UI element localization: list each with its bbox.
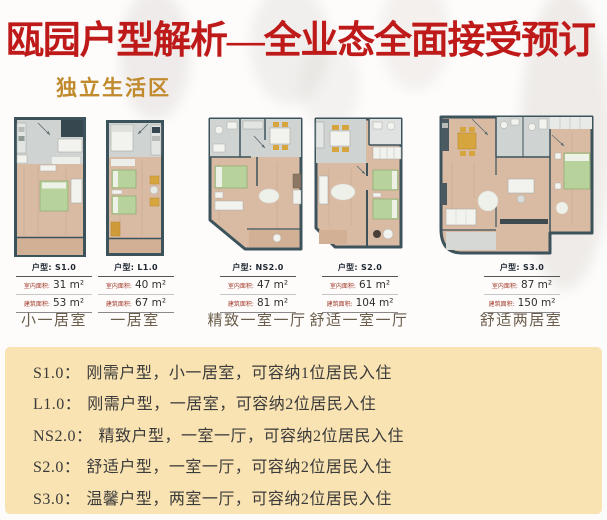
legend-desc: 刚需户型，一居室，可容纳2位居民入住	[87, 390, 376, 414]
legend-code: S2.0：	[33, 453, 80, 477]
legend-row-ns2: NS2.0：精致户型，一室一厅，可容纳2位居民入住	[33, 418, 602, 450]
plan-type-row: 户型: S2.0	[322, 262, 398, 277]
type-value: L1.0	[137, 263, 157, 272]
gross-area-label: 建筑面积:	[24, 299, 50, 308]
legend-code: S1.0：	[33, 359, 80, 383]
legend-row-s2: S2.0：舒适户型，一室一厅，可容纳2位居民入住	[33, 450, 602, 482]
legend-row-s3: S3.0：温馨户型，两室一厅，可容纳2位居民入住	[33, 481, 602, 513]
indoor-area-value: 61 m²	[359, 279, 390, 291]
floorplan-s3-image	[432, 113, 600, 258]
gross-area-value: 53 m²	[53, 297, 84, 309]
plan-info-ns2: 户型: NS2.0 室内面积:47 m² 建筑面积:81 m²	[220, 262, 296, 313]
gross-area-label: 建筑面积:	[228, 299, 254, 308]
indoor-area-row: 室内面积:87 m²	[484, 277, 560, 295]
legend-panel: S1.0：刚需户型，小一居室，可容纳1位居民入住 L1.0：刚需户型，一居室，可…	[5, 347, 602, 514]
indoor-area-label: 室内面积:	[106, 281, 132, 290]
plan-type-row: 户型: L1.0	[98, 262, 174, 277]
type-value: S1.0	[55, 263, 76, 272]
plan-type-row: 户型: S3.0	[484, 262, 560, 277]
floorplan-s3	[432, 113, 600, 258]
floorplan-l1	[106, 120, 164, 256]
indoor-area-row: 室内面积:40 m²	[98, 277, 174, 295]
type-label: 户型:	[338, 263, 358, 272]
gross-area-value: 67 m²	[135, 297, 166, 309]
plan-name: 一居室	[85, 309, 185, 330]
legend-code: NS2.0：	[33, 422, 92, 446]
indoor-area-label: 室内面积:	[492, 281, 518, 290]
plan-type-row: 户型: S1.0	[16, 262, 92, 277]
type-label: 户型:	[114, 263, 134, 272]
legend-code: S3.0：	[33, 485, 80, 509]
plan-name: 精致一室一厅	[207, 309, 307, 330]
floorplan-s2	[313, 116, 404, 250]
indoor-area-value: 87 m²	[521, 279, 552, 291]
type-label: 户型:	[500, 263, 520, 272]
plan-info-s3: 户型: S3.0 室内面积:87 m² 建筑面积:150 m²	[484, 262, 560, 313]
type-label: 户型:	[32, 263, 52, 272]
indoor-area-value: 31 m²	[53, 279, 84, 291]
page-title: 瓯园户型解析—全业态全面接受预订	[6, 9, 595, 64]
legend-desc: 舒适户型，一室一厅，可容纳2位居民入住	[86, 453, 392, 477]
indoor-area-row: 室内面积:61 m²	[322, 277, 398, 295]
gross-area-value: 81 m²	[257, 297, 288, 309]
gross-area-label: 建筑面积:	[489, 299, 515, 308]
indoor-area-label: 室内面积:	[24, 281, 50, 290]
legend-desc: 温馨户型，两室一厅，可容纳2位居民入住	[86, 485, 392, 509]
floorplan-l1-image	[106, 120, 164, 256]
indoor-area-value: 47 m²	[257, 279, 288, 291]
gross-area-value: 150 m²	[518, 297, 556, 309]
legend-row-l1: L1.0：刚需户型，一居室，可容纳2位居民入住	[33, 387, 602, 419]
legend-desc: 精致户型，一室一厅，可容纳2位居民入住	[98, 422, 404, 446]
type-value: NS2.0	[256, 263, 284, 272]
plan-type-row: 户型: NS2.0	[220, 262, 296, 277]
gross-area-label: 建筑面积:	[327, 299, 353, 308]
indoor-area-label: 室内面积:	[330, 281, 356, 290]
type-value: S3.0	[523, 263, 544, 272]
type-value: S2.0	[361, 263, 382, 272]
floorplan-ns2	[207, 116, 304, 252]
floorplan-s2-image	[313, 116, 404, 250]
plan-name: 舒适一室一厅	[309, 309, 409, 330]
indoor-area-row: 室内面积:47 m²	[220, 277, 296, 295]
plan-name: 舒适两居室	[471, 309, 571, 330]
slide: 瓯园户型解析—全业态全面接受预订 独立生活区	[0, 0, 607, 520]
legend-row-s1: S1.0：刚需户型，小一居室，可容纳1位居民入住	[33, 355, 602, 387]
floorplan-ns2-image	[207, 116, 304, 252]
gross-area-value: 104 m²	[356, 297, 394, 309]
indoor-area-label: 室内面积:	[228, 281, 254, 290]
legend-code: L1.0：	[33, 390, 81, 414]
plan-info-l1: 户型: L1.0 室内面积:40 m² 建筑面积:67 m²	[98, 262, 174, 313]
floorplan-s1-image	[14, 117, 86, 257]
gross-area-label: 建筑面积:	[106, 299, 132, 308]
type-label: 户型:	[232, 263, 252, 272]
floorplan-s1	[14, 117, 86, 257]
plan-info-s1: 户型: S1.0 室内面积:31 m² 建筑面积:53 m²	[16, 262, 92, 313]
indoor-area-row: 室内面积:31 m²	[16, 277, 92, 295]
plan-info-s2: 户型: S2.0 室内面积:61 m² 建筑面积:104 m²	[322, 262, 398, 313]
legend-desc: 刚需户型，小一居室，可容纳1位居民入住	[86, 359, 392, 383]
indoor-area-value: 40 m²	[135, 279, 166, 291]
section-label: 独立生活区	[56, 72, 171, 102]
